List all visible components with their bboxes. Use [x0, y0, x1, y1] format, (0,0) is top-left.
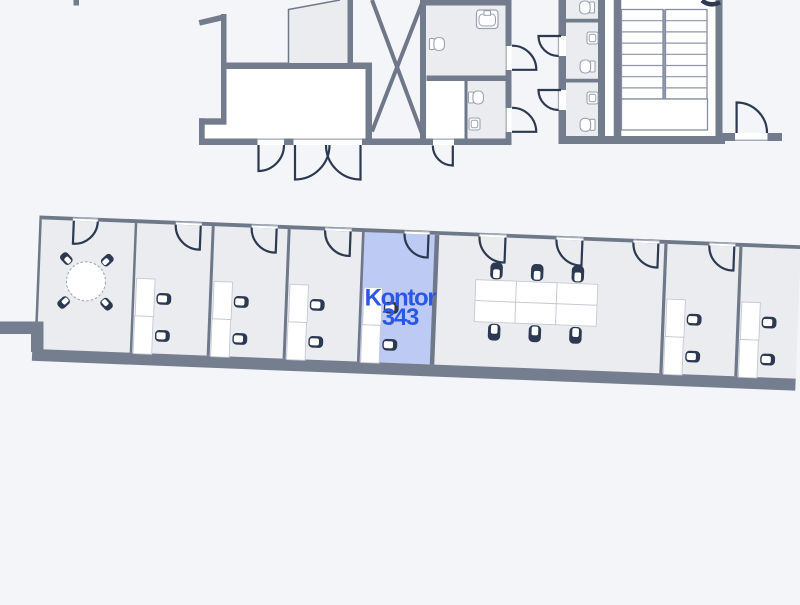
svg-text:343: 343 [382, 304, 419, 331]
